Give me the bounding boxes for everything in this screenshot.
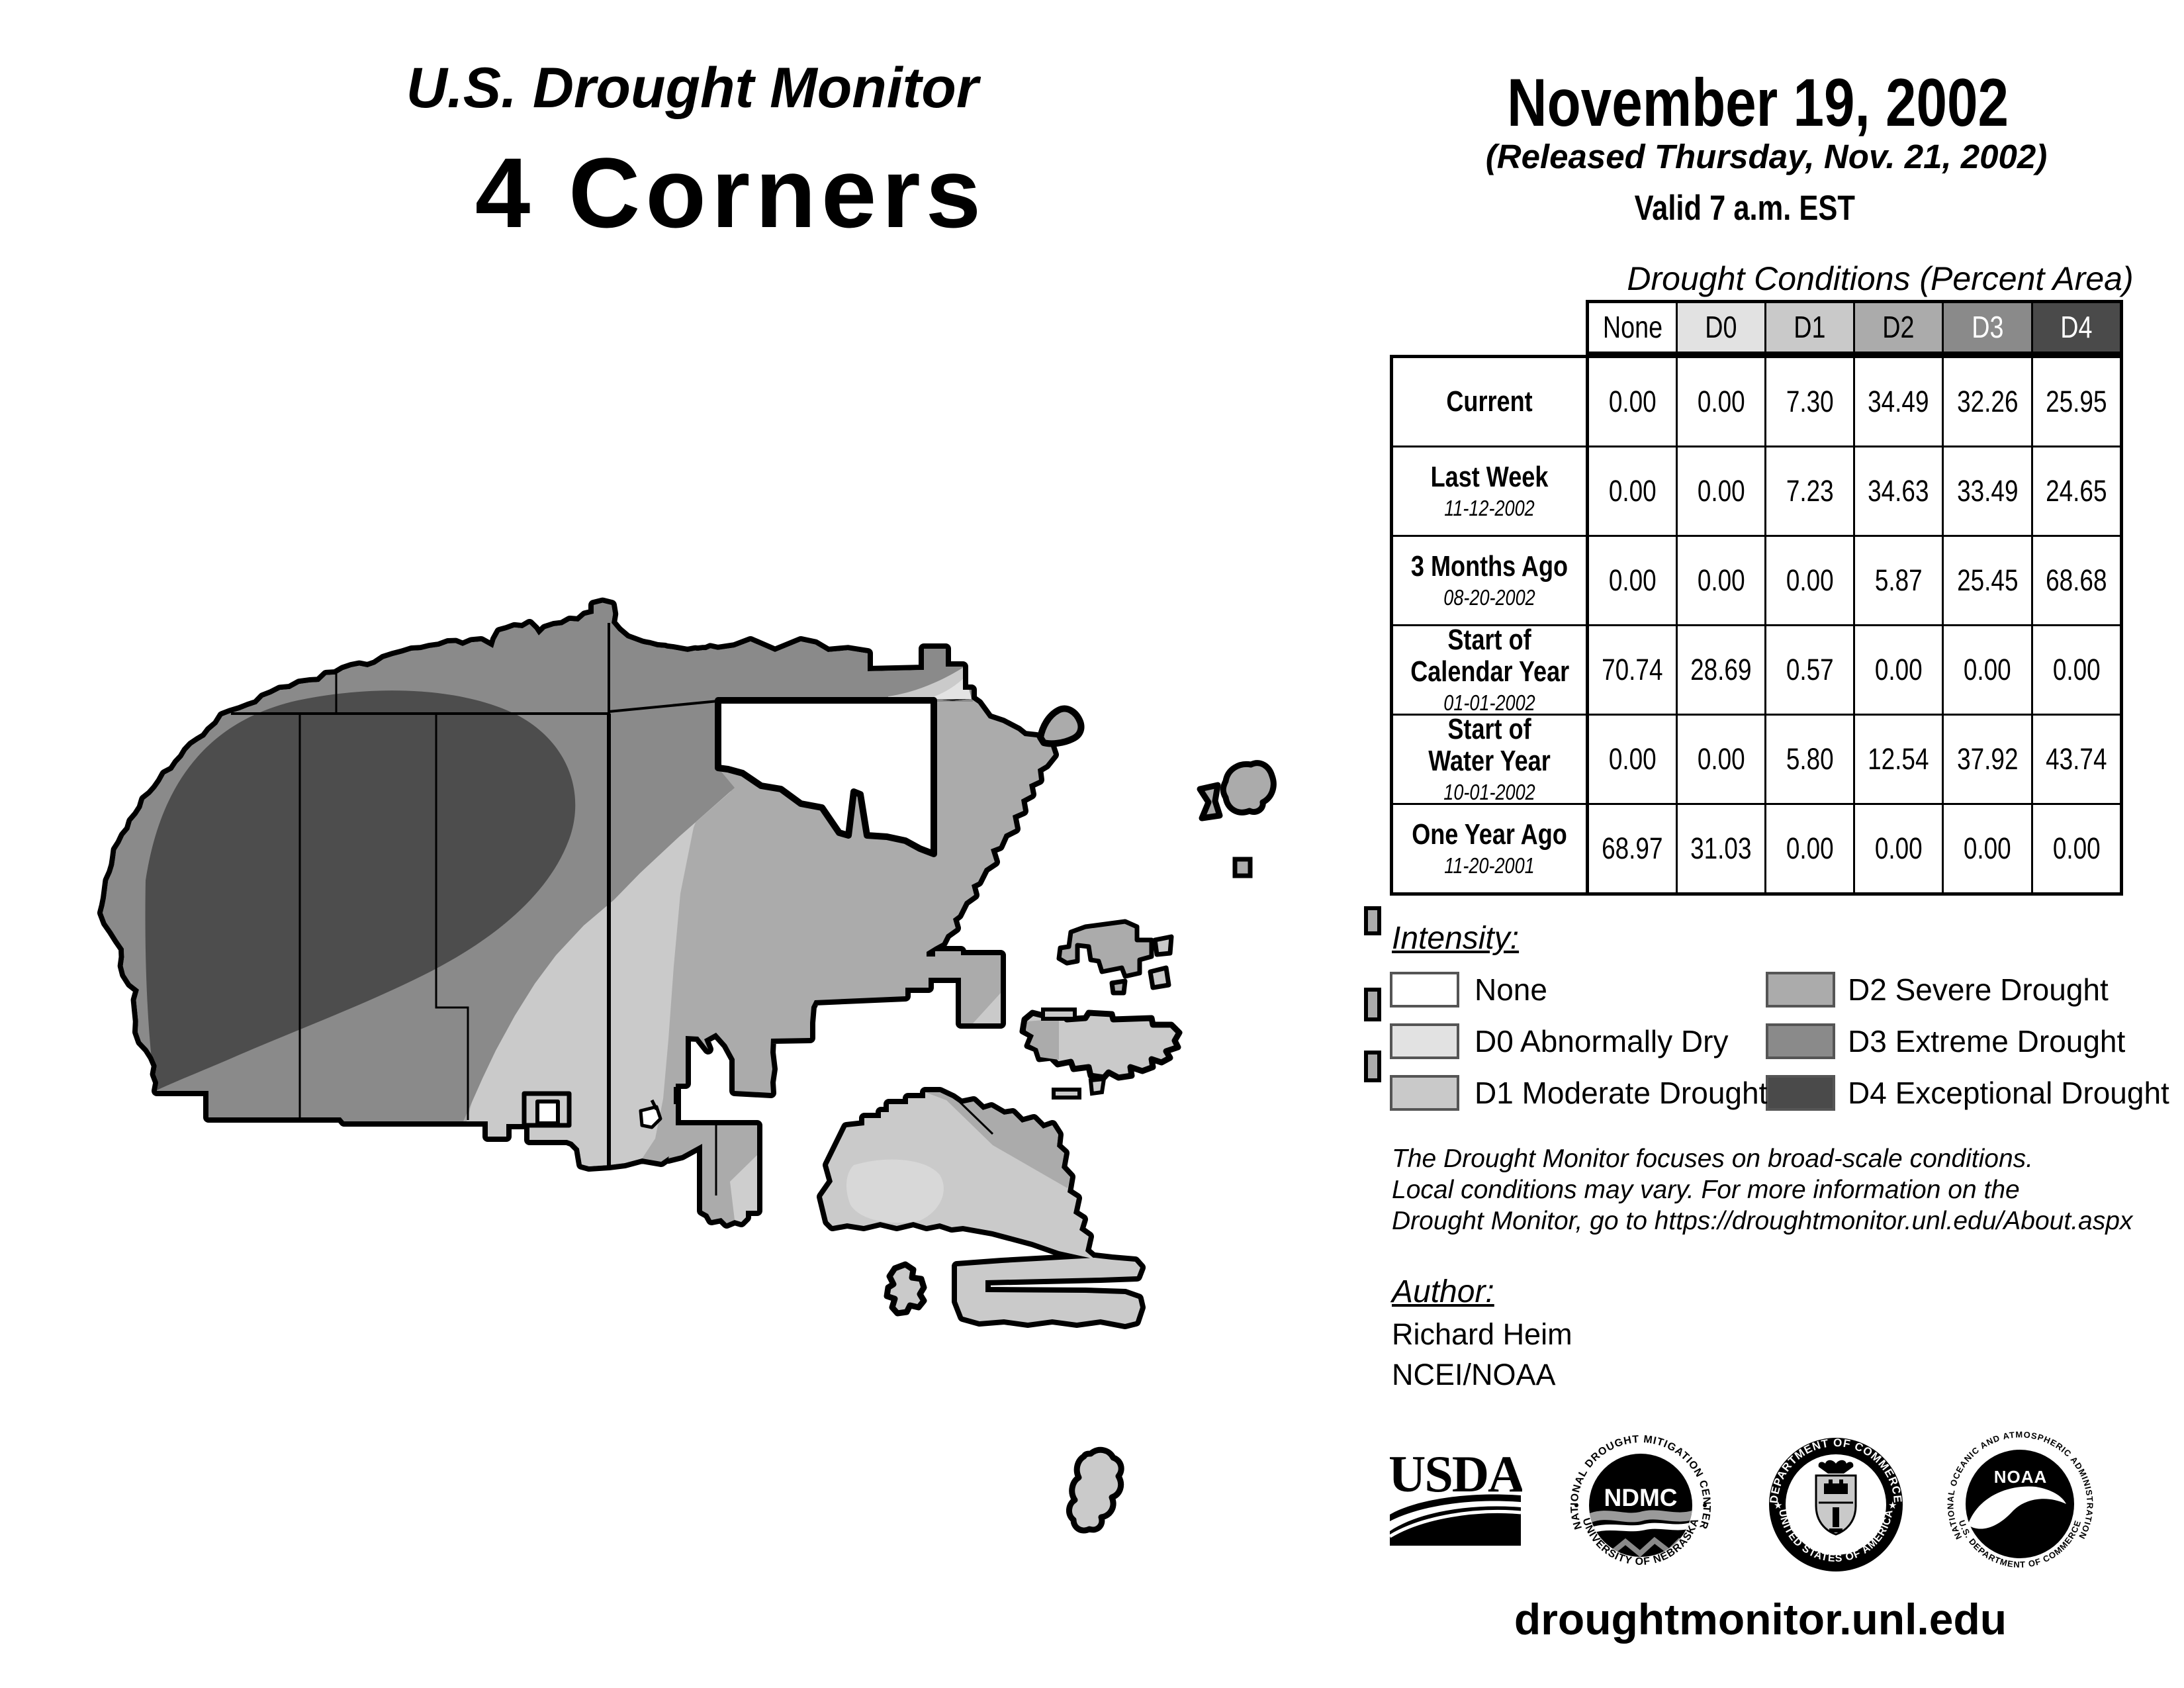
svg-text:★: ★ (1774, 1500, 1782, 1511)
svg-text:NOAA: NOAA (1994, 1467, 2048, 1487)
svg-text:NDMC: NDMC (1604, 1484, 1678, 1511)
svg-text:★: ★ (1888, 1500, 1897, 1511)
